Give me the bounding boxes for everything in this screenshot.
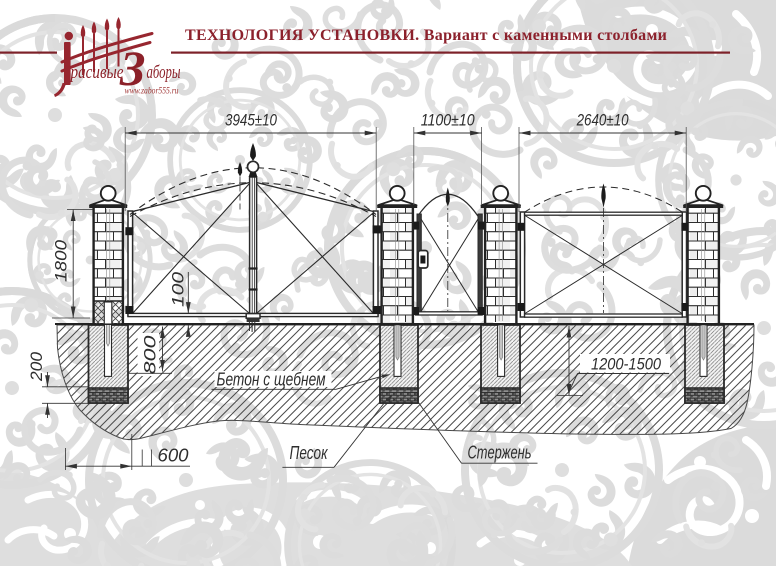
- svg-text:1100±10: 1100±10: [421, 111, 475, 130]
- svg-text:аборы: аборы: [147, 62, 181, 83]
- svg-text:100: 100: [169, 271, 188, 307]
- svg-text:Песок: Песок: [290, 443, 329, 463]
- svg-text:2640±10: 2640±10: [576, 111, 629, 130]
- svg-text:ТЕХНОЛОГИЯ УСТАНОВКИ. Вариан: ТЕХНОЛОГИЯ УСТАНОВКИ. Вариант с каменным…: [185, 27, 668, 44]
- svg-text:расивые: расивые: [69, 62, 124, 83]
- svg-text:Стержень: Стержень: [468, 443, 532, 463]
- svg-text:800: 800: [141, 335, 160, 375]
- svg-text:1200-1500: 1200-1500: [591, 355, 661, 374]
- svg-text:Бетон с щебнем: Бетон с щебнем: [217, 370, 326, 390]
- svg-text:600: 600: [158, 446, 189, 466]
- svg-text:200: 200: [27, 351, 46, 382]
- svg-text:3945±10: 3945±10: [225, 111, 277, 130]
- svg-text:1800: 1800: [52, 239, 71, 282]
- svg-text:www.zabor555.ru: www.zabor555.ru: [125, 86, 179, 96]
